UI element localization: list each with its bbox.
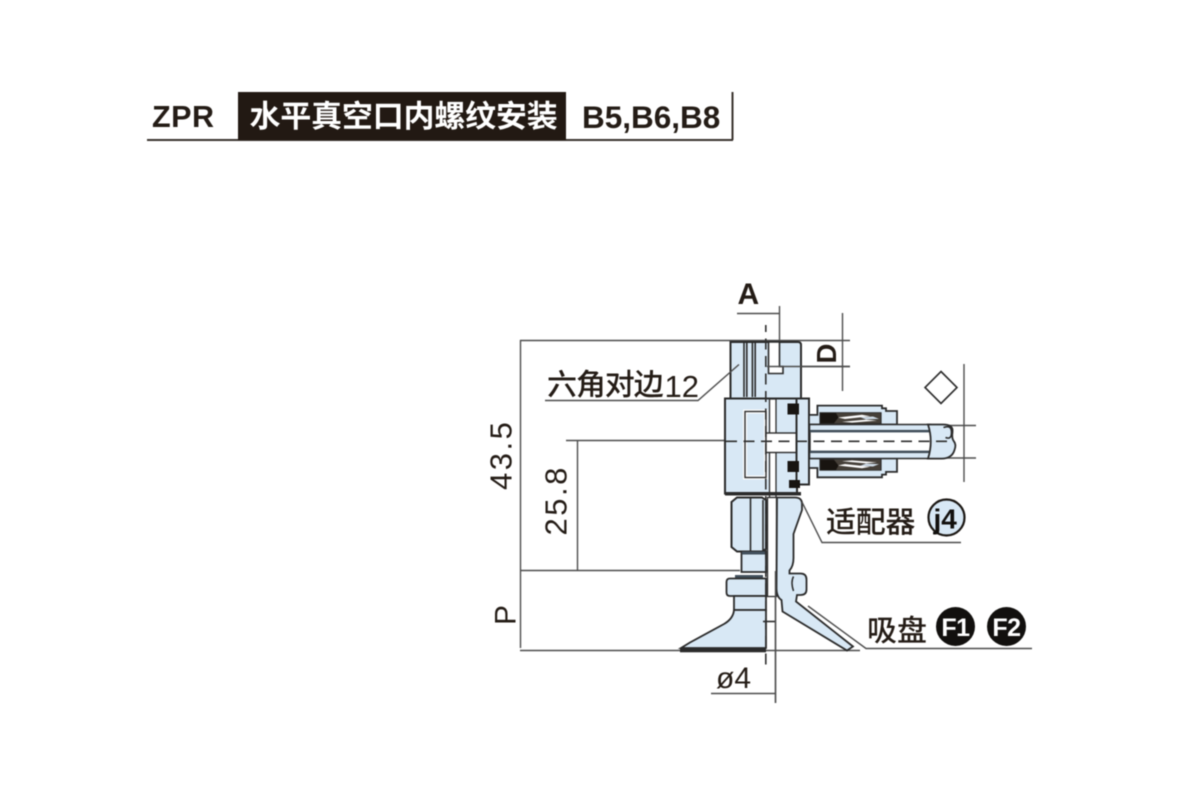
svg-text:D: D xyxy=(811,344,842,364)
svg-text:43.5: 43.5 xyxy=(484,420,519,490)
svg-text:12: 12 xyxy=(665,369,699,404)
svg-text:25.8: 25.8 xyxy=(539,465,574,535)
svg-text:ZPR: ZPR xyxy=(152,100,215,134)
svg-text:P: P xyxy=(490,605,523,625)
svg-text:B5,B6,B8: B5,B6,B8 xyxy=(582,99,720,135)
svg-text:F1: F1 xyxy=(941,614,970,642)
svg-text:F2: F2 xyxy=(992,614,1020,642)
svg-text:j4: j4 xyxy=(933,504,958,535)
svg-text:ø4: ø4 xyxy=(716,662,751,695)
svg-text:A: A xyxy=(738,278,760,311)
